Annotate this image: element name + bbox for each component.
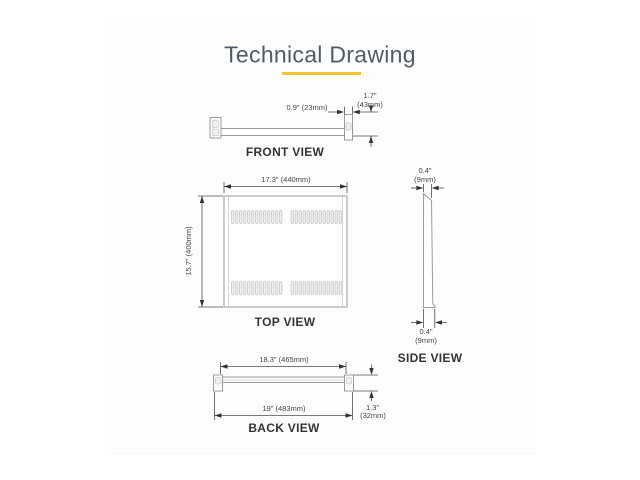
vent-slot: [236, 282, 238, 295]
vent-slot: [240, 282, 242, 295]
vent-slot: [248, 282, 250, 295]
back-overall-arrow-left: [215, 413, 222, 417]
vent-slot: [256, 211, 258, 224]
vent-slot: [307, 282, 309, 295]
vent-slot: [307, 211, 309, 224]
vent-slot: [264, 282, 266, 295]
back-right-ear-hole: [347, 378, 352, 385]
vent-slot: [331, 282, 333, 295]
vent-slot: [339, 282, 341, 295]
vent-slot: [311, 282, 313, 295]
vent-slot: [240, 211, 242, 224]
vent-slot: [335, 211, 337, 224]
front-view-caption: FRONT VIEW: [246, 145, 324, 159]
back-flange-arrow-right: [339, 364, 346, 368]
side-view-caption: SIDE VIEW: [398, 351, 463, 365]
side-bottom-thickness-mm-label: (9mm): [415, 337, 437, 345]
vent-slot: [272, 211, 274, 224]
vent-slot: [236, 211, 238, 224]
front-height-mm-label: (43mm): [357, 101, 383, 109]
top-depth-label: 15.7" (400mm): [185, 226, 193, 275]
front-left-ear-hole-top: [213, 121, 219, 128]
vent-slot: [311, 211, 313, 224]
front-lip-dim-arrow-right: [353, 110, 360, 114]
vent-slot: [276, 211, 278, 224]
side-top-arrow-left: [416, 186, 423, 190]
vent-slot: [327, 282, 329, 295]
top-width-label: 17.3" (440mm): [261, 176, 310, 184]
vent-slot: [323, 211, 325, 224]
front-lip-dim-arrow-left: [337, 110, 344, 114]
vent-slot: [339, 211, 341, 224]
vent-slot: [272, 282, 274, 295]
top-width-arrow-left: [224, 184, 231, 188]
top-view-drawing: [198, 182, 347, 307]
top-width-arrow-right: [340, 184, 347, 188]
front-shelf-bar: [221, 129, 345, 136]
vent-slot: [303, 211, 305, 224]
technical-drawing-page: { "title": "Technical Drawing", "theme":…: [0, 0, 640, 480]
vent-slot: [295, 211, 297, 224]
side-view-drawing: [411, 184, 447, 328]
vent-slot: [268, 282, 270, 295]
back-height-mm-label: (32mm): [360, 412, 386, 420]
top-view-caption: TOP VIEW: [255, 315, 316, 329]
vent-slot: [327, 211, 329, 224]
vent-slot: [303, 282, 305, 295]
vent-slot: [244, 211, 246, 224]
vent-slot: [252, 211, 254, 224]
vent-slot: [280, 282, 282, 295]
vent-slot: [248, 211, 250, 224]
vent-slot: [299, 211, 301, 224]
vent-slot: [252, 282, 254, 295]
back-flange-width-label: 18.3" (465mm): [259, 356, 308, 364]
vent-slot: [291, 282, 293, 295]
back-view-caption: BACK VIEW: [248, 421, 319, 435]
top-depth-arrow-top: [200, 196, 204, 203]
back-left-ear-hole: [216, 378, 221, 385]
back-flange-arrow-left: [221, 364, 228, 368]
vent-slot: [319, 282, 321, 295]
vent-slot: [315, 282, 317, 295]
vent-slot: [335, 282, 337, 295]
vent-slot: [260, 282, 262, 295]
vent-slot: [295, 282, 297, 295]
vent-slot: [276, 282, 278, 295]
back-overall-arrow-right: [346, 413, 353, 417]
vent-slot: [268, 211, 270, 224]
vent-slot: [232, 282, 234, 295]
side-top-arrow-right: [432, 186, 439, 190]
technical-drawing-figure: [0, 0, 640, 480]
top-depth-arrow-bottom: [200, 300, 204, 307]
front-left-ear-hole-bottom: [213, 129, 219, 136]
side-top-thickness-mm-label: (9mm): [414, 176, 436, 184]
front-height-dim-arrow-bottom: [369, 136, 373, 143]
front-height-inches-label: 1.7": [363, 92, 376, 100]
side-plate-profile: [424, 194, 436, 308]
vent-slot: [244, 282, 246, 295]
front-right-bracket-hole: [346, 123, 351, 131]
vent-slot: [232, 211, 234, 224]
vent-slot: [319, 211, 321, 224]
vent-slot: [264, 211, 266, 224]
vent-slot: [299, 282, 301, 295]
vent-slot: [256, 282, 258, 295]
vent-slot: [323, 282, 325, 295]
vent-slot: [280, 211, 282, 224]
back-height-arrow-top: [369, 368, 373, 375]
side-bottom-arrow-right: [435, 320, 442, 324]
front-lip-depth-label: 0.9" (23mm): [286, 104, 327, 112]
vent-slot: [291, 211, 293, 224]
vent-slot: [315, 211, 317, 224]
back-overall-width-label: 19" (483mm): [262, 405, 305, 413]
vent-slot: [331, 211, 333, 224]
back-height-arrow-bottom: [369, 391, 373, 398]
side-bottom-arrow-left: [416, 320, 423, 324]
vent-slot: [260, 211, 262, 224]
